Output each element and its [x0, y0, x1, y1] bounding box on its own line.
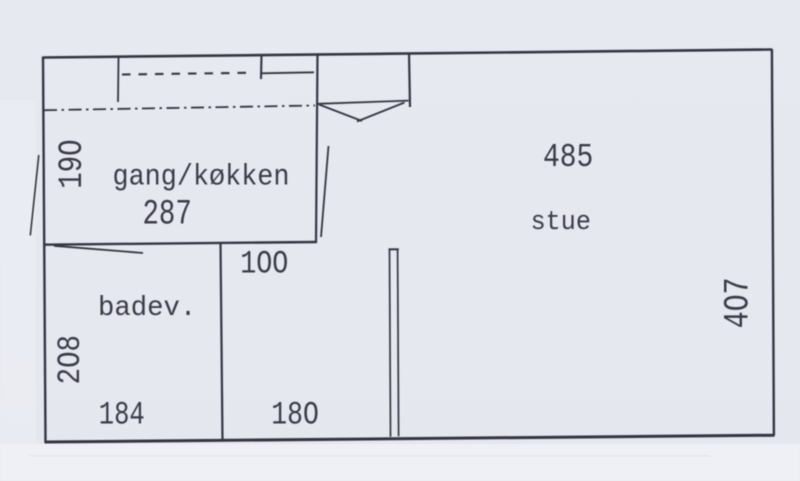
svg-text:287: 287 [143, 194, 192, 235]
svg-text:18O: 18O [271, 397, 319, 434]
svg-text:184: 184 [99, 397, 145, 434]
svg-text:stue: stue [531, 208, 591, 238]
svg-text:485: 485 [543, 139, 593, 177]
svg-text:19O: 19O [53, 139, 92, 188]
svg-text:badev.: badev. [98, 293, 196, 324]
svg-text:2O8: 2O8 [52, 335, 89, 384]
svg-text:1OO: 1OO [240, 246, 288, 283]
svg-text:gang/køkken: gang/køkken [113, 161, 290, 194]
svg-text:4O7: 4O7 [717, 278, 758, 329]
